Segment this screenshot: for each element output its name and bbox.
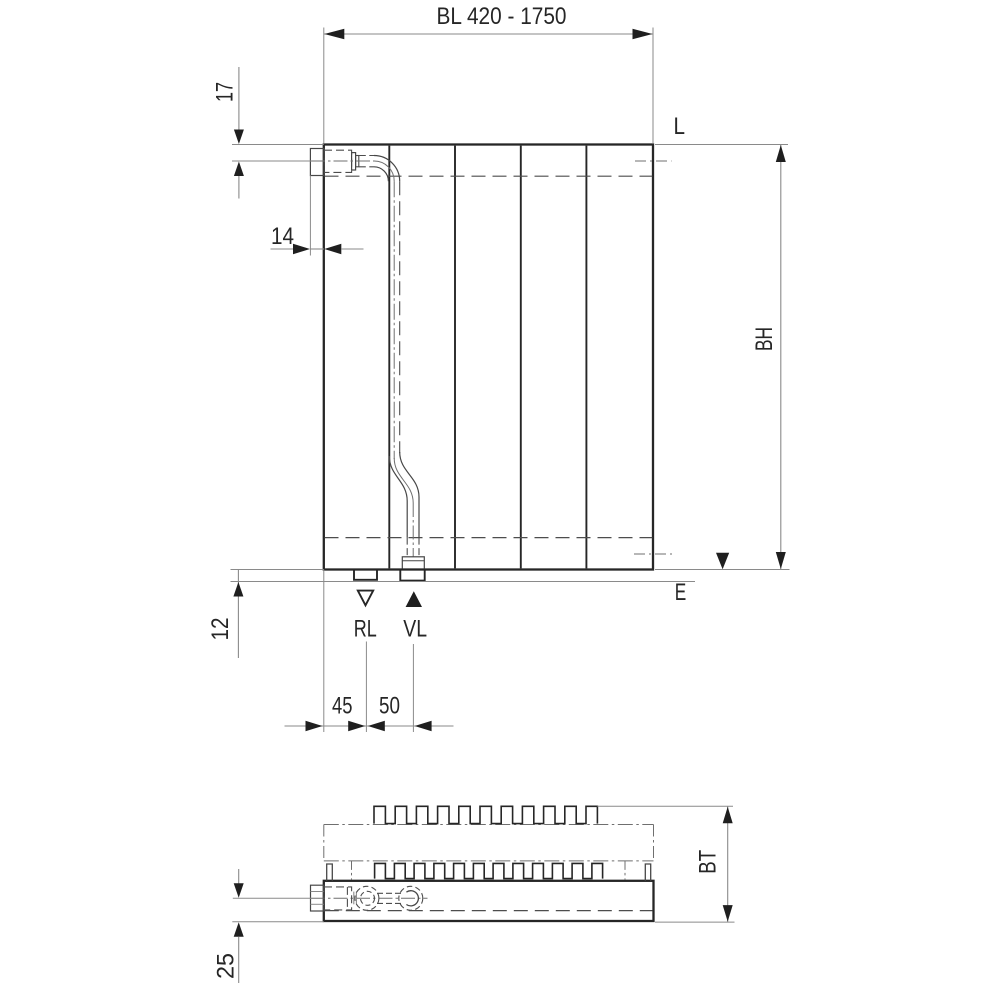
svg-text:12: 12 (207, 618, 234, 641)
svg-text:17: 17 (212, 82, 239, 102)
svg-text:VL: VL (403, 615, 427, 642)
svg-text:BL 420 - 1750: BL 420 - 1750 (437, 3, 567, 30)
svg-text:50: 50 (379, 693, 400, 720)
svg-text:BH: BH (751, 327, 778, 351)
svg-text:14: 14 (271, 223, 294, 250)
svg-text:BT: BT (694, 850, 721, 874)
svg-text:RL: RL (354, 615, 377, 642)
svg-text:E: E (675, 579, 687, 606)
svg-text:25: 25 (212, 953, 239, 979)
svg-text:45: 45 (332, 693, 353, 720)
svg-text:L: L (674, 113, 686, 140)
